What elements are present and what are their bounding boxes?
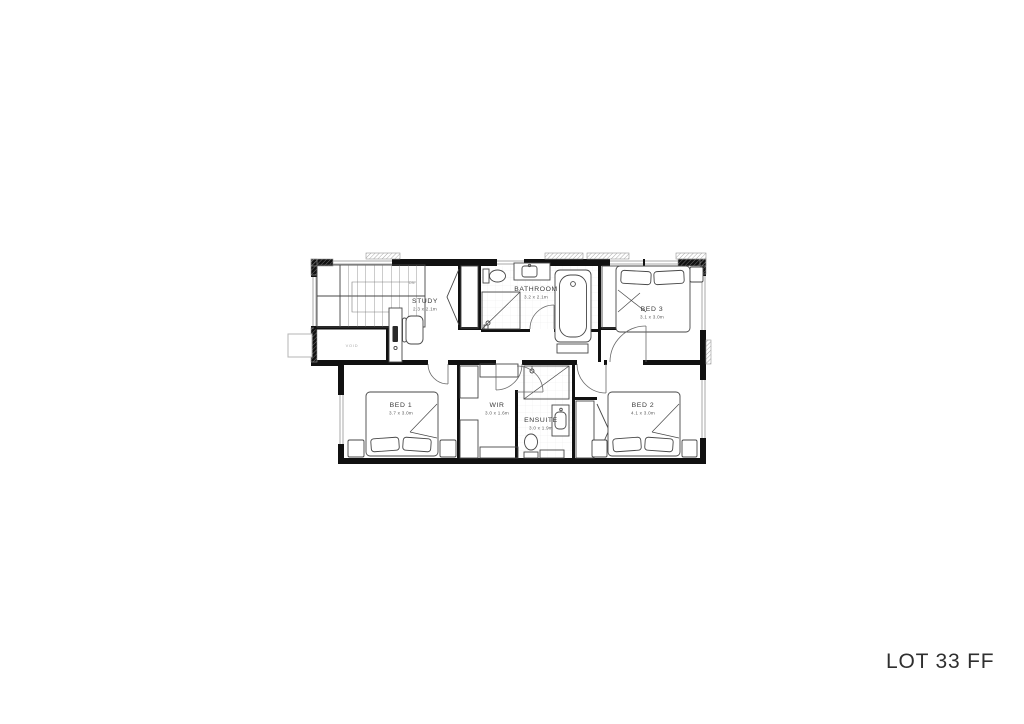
room-label: BED 3: [641, 306, 664, 313]
bed-icon: [616, 266, 703, 332]
chair-icon: [403, 316, 424, 344]
bifold-door-icon: [447, 269, 459, 325]
room-bed2: BED 2 4.1 x 3.0m: [592, 392, 697, 457]
bathtub-icon: [555, 270, 591, 353]
room-study: STUDY 2.3 x 2.1m: [389, 298, 438, 362]
window-icon: [700, 276, 706, 330]
plan-title: LOT 33 FF: [886, 650, 994, 674]
room-dims: 3.0 x 1.9m: [529, 426, 553, 431]
bedside-table-icon: [682, 440, 697, 457]
room-dims: 3.1 x 3.0m: [640, 315, 664, 320]
hall-closet: [447, 266, 478, 328]
wardrobe-rail-icon: [460, 366, 478, 398]
vanity-icon: [514, 263, 550, 280]
window-icon: [311, 277, 317, 326]
door-icon: [428, 364, 448, 384]
room-label: BED 1: [390, 402, 413, 409]
room-wir: WIR 3.0 x 1.6m: [460, 364, 518, 458]
bedside-table-icon: [690, 267, 703, 282]
toilet-icon: [524, 434, 538, 458]
room-dims: 3.2 x 2.1m: [524, 295, 548, 300]
window-icon: [700, 380, 706, 438]
stair-direction-label: DN: [409, 281, 415, 285]
wardrobe-rail-icon: [480, 447, 518, 458]
bedside-table-icon: [440, 440, 456, 457]
room-dims: 3.7 x 3.0m: [389, 411, 413, 416]
bedside-table-icon: [348, 440, 364, 457]
room-bed3: BED 3 3.1 x 3.0m: [616, 266, 703, 332]
room-label: BED 2: [632, 402, 655, 409]
bump-out: [288, 334, 312, 357]
toilet-icon: [483, 269, 506, 283]
desk-icon: [389, 308, 402, 362]
window-icon: [338, 395, 344, 444]
room-dims: 3.0 x 1.6m: [485, 411, 509, 416]
room-label: STUDY: [412, 298, 438, 305]
room-dims: 2.3 x 2.1m: [413, 307, 437, 312]
floor-plan: DN VOID STUDY 2.3 x 2.1m: [0, 0, 1024, 724]
room-label: ENSUITE: [524, 417, 558, 424]
bedside-table-icon: [592, 440, 607, 457]
wardrobe-rail-icon: [480, 364, 518, 377]
room-label: WIR: [489, 402, 504, 409]
floor-plan-canvas: DN VOID STUDY 2.3 x 2.1m: [0, 0, 1024, 724]
void-label: VOID: [346, 343, 359, 348]
room-dims: 4.1 x 3.0m: [631, 411, 655, 416]
room-bed1: BED 1 3.7 x 3.0m: [348, 392, 456, 457]
room-label: BATHROOM: [514, 286, 558, 293]
door-icon: [577, 364, 606, 393]
window-icon: [610, 259, 678, 266]
wardrobe-rail-icon: [460, 420, 478, 458]
